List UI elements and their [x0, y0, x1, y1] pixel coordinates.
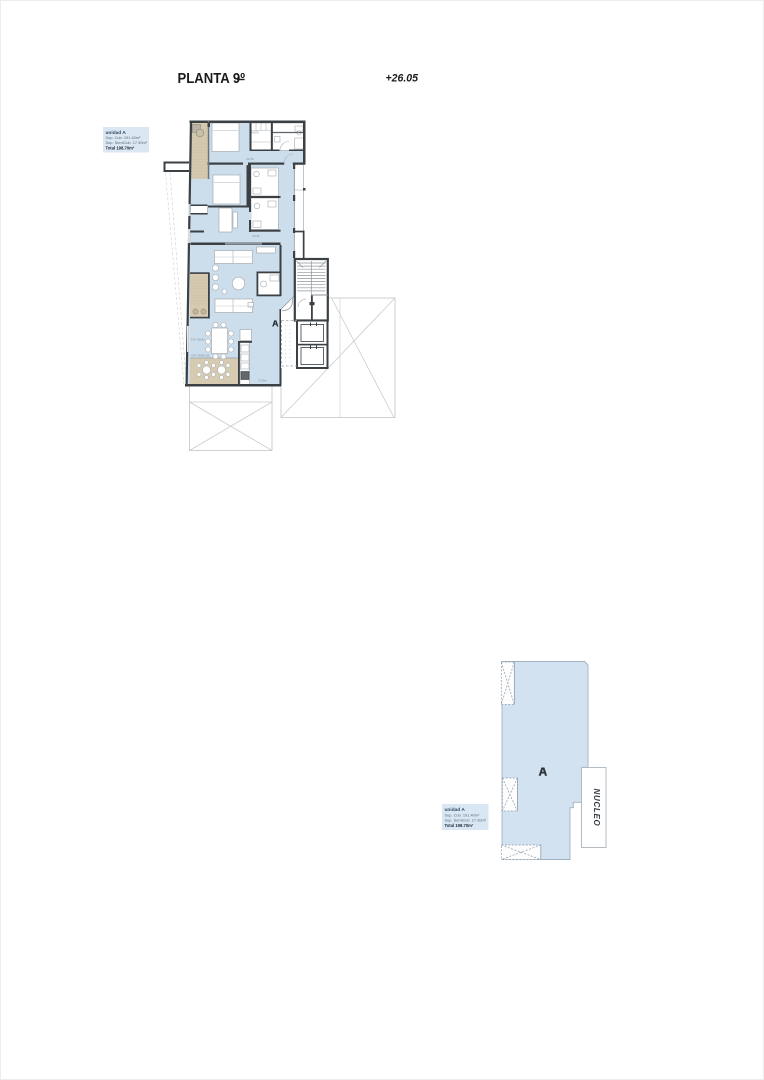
svg-text:SUP. SEMICUB.: SUP. SEMICUB.	[191, 354, 210, 358]
svg-text:M.BTE: M.BTE	[252, 132, 260, 135]
svg-text:Sup. SemiCub. 17.30m²: Sup. SemiCub. 17.30m²	[106, 140, 148, 145]
svg-text:27.55m: 27.55m	[258, 379, 267, 383]
svg-text:+26.05: +26.05	[386, 73, 419, 85]
svg-text:SUP. SEMIC.: SUP. SEMIC.	[191, 338, 207, 342]
svg-text:PLANTA 9º: PLANTA 9º	[178, 71, 246, 87]
svg-text:SUITE: SUITE	[252, 234, 260, 238]
svg-text:Total 198.70m²: Total 198.70m²	[445, 823, 474, 828]
svg-text:NUCLEO: NUCLEO	[592, 789, 601, 827]
svg-text:SUITE: SUITE	[246, 157, 254, 161]
svg-text:Total 198.70m²: Total 198.70m²	[106, 146, 135, 151]
svg-text:Sup. SemiCub. 17.30m²: Sup. SemiCub. 17.30m²	[445, 817, 487, 822]
